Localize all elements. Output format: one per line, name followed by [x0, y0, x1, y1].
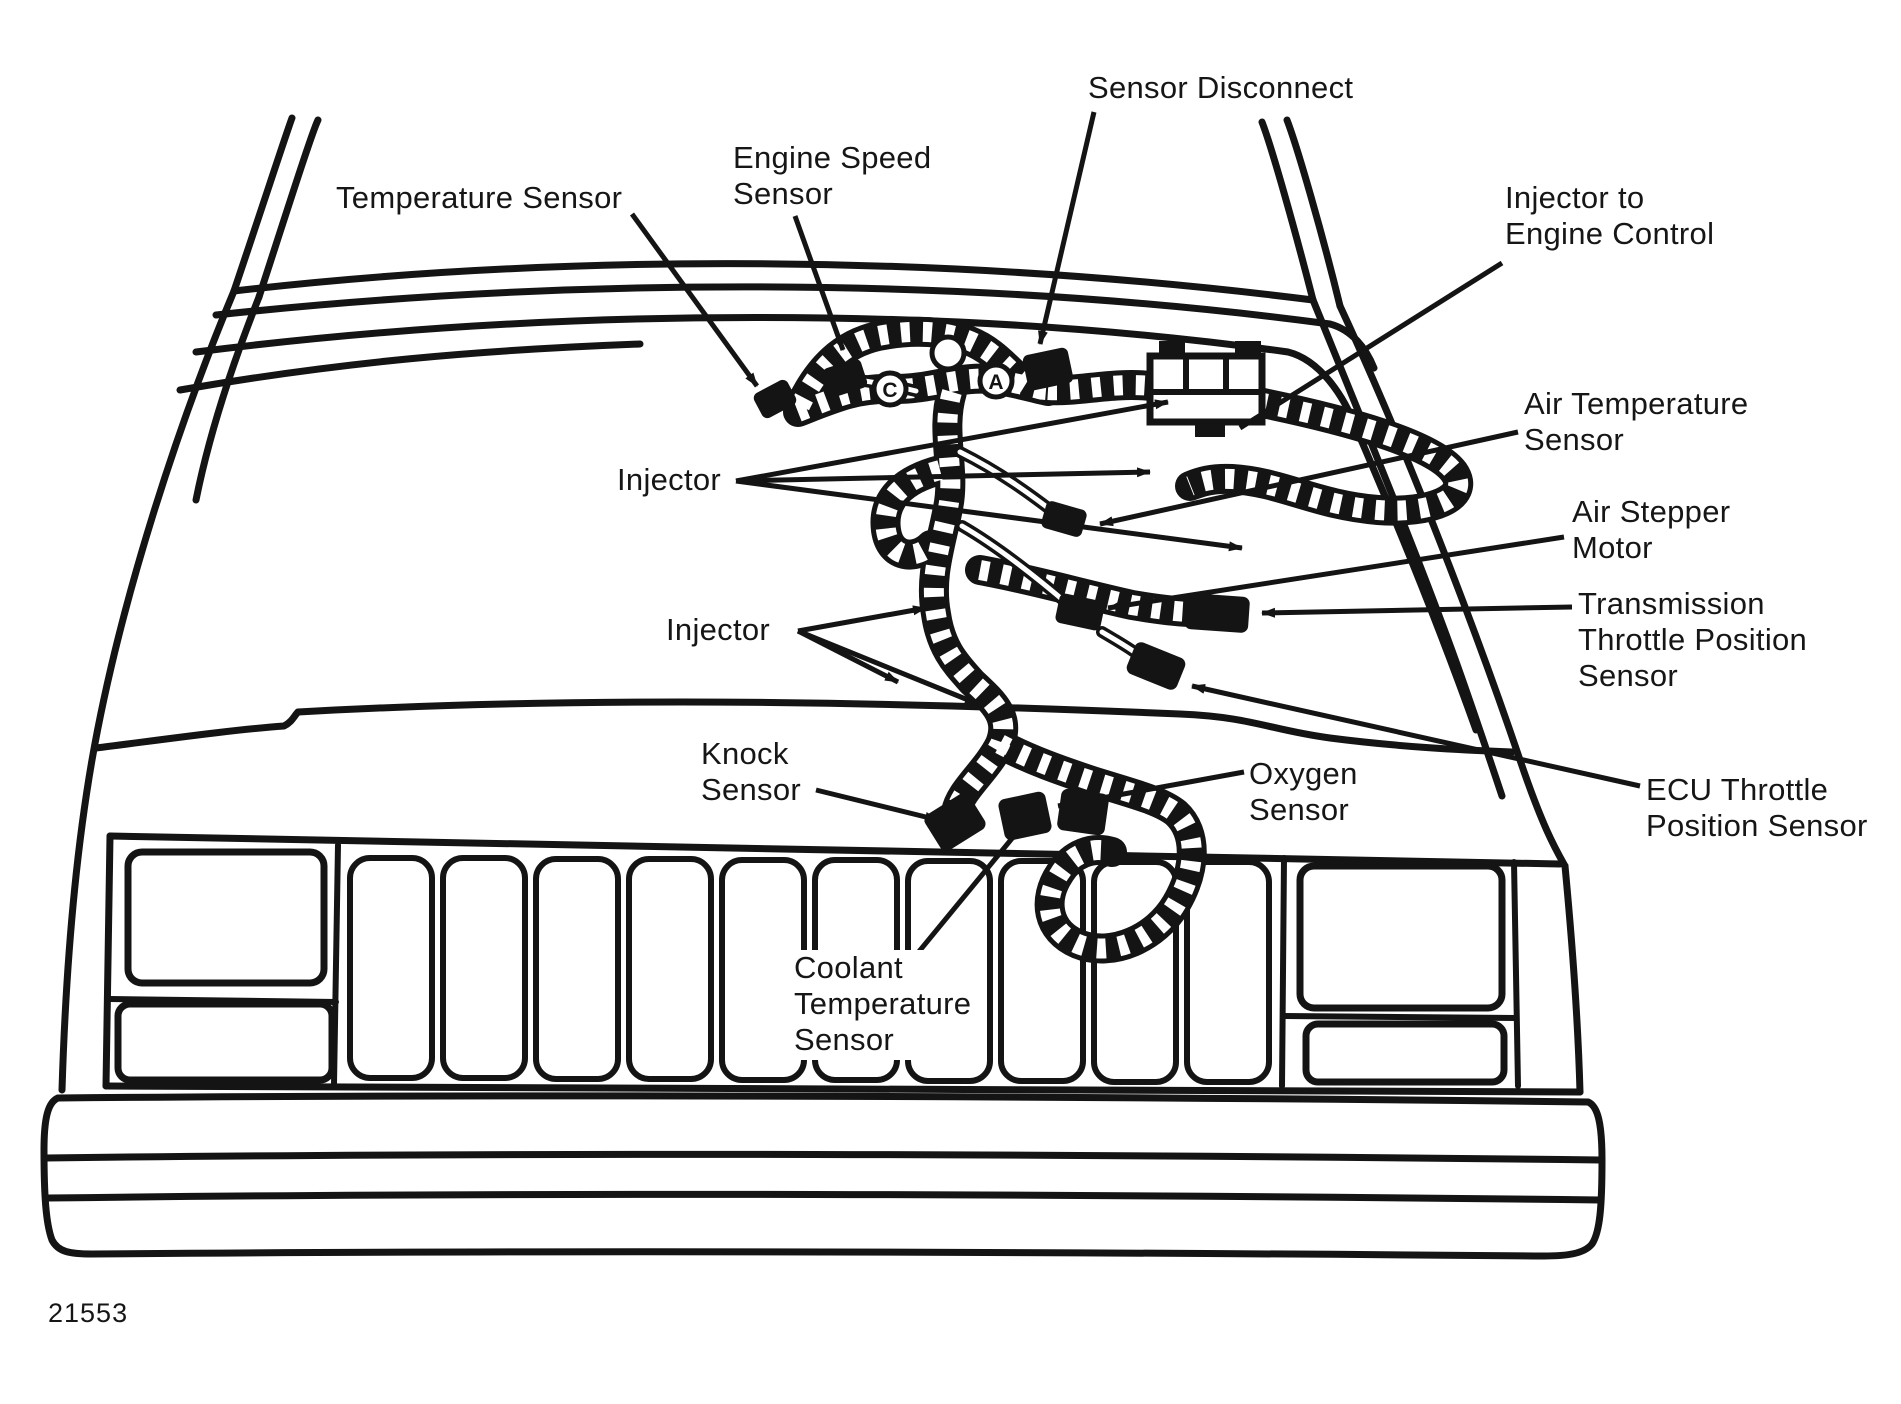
label-line: Engine Control: [1505, 216, 1714, 252]
label-coolant-temperature-sensor: Coolant Temperature Sensor: [792, 950, 977, 1060]
label-line: Injector: [617, 462, 721, 498]
label-line: Sensor: [701, 772, 801, 808]
coolant-temperature-sensor-connector: [998, 792, 1051, 841]
right-parking-lamp: [1306, 1024, 1504, 1082]
label-line: Sensor Disconnect: [1088, 70, 1353, 106]
label-line: Sensor: [1249, 792, 1358, 828]
label-temperature-sensor: Temperature Sensor: [336, 180, 622, 216]
cowl-crease-line: [180, 344, 640, 390]
grille-slat: [1094, 862, 1176, 1082]
label-line: Knock: [701, 736, 801, 772]
bumper-right-cap: [1544, 1102, 1602, 1256]
wiring-diagram-page: C A Temperature Sensor Engine Speed Sens…: [0, 0, 1901, 1404]
label-line: Sensor: [1578, 658, 1807, 694]
label-line: ECU Throttle: [1646, 772, 1868, 808]
grille-slat: [443, 858, 525, 1078]
grille-divider-far-right: [1514, 862, 1518, 1086]
right-a-pillar-outer-line: [1287, 120, 1340, 306]
air-stepper-motor-leader: [1108, 537, 1564, 608]
left-door-seam: [196, 297, 259, 500]
left-body-edge: [62, 291, 234, 1090]
label-injector-to-engine-control: Injector to Engine Control: [1505, 180, 1714, 252]
grille-divider-right: [1282, 858, 1284, 1086]
grille-slat: [629, 859, 711, 1079]
engine-speed-sensor-leader: [795, 216, 843, 350]
label-line: Temperature: [794, 986, 971, 1022]
label-air-temperature-sensor: Air Temperature Sensor: [1524, 386, 1748, 458]
knock-sensor-leader: [816, 790, 938, 820]
grille-left-edge: [106, 836, 110, 1086]
bumper: [44, 1096, 1602, 1256]
left-a-pillar-outer-line: [234, 118, 292, 291]
label-ecu-throttle-position-sensor: ECU Throttle Position Sensor: [1646, 772, 1868, 844]
harness-marker-ring-middle: [932, 337, 964, 369]
label-line: Air Stepper: [1572, 494, 1730, 530]
left-headlight: [128, 852, 324, 983]
label-line: Air Temperature: [1524, 386, 1748, 422]
bumper-bottom-edge: [92, 1252, 1544, 1256]
label-line: Transmission: [1578, 586, 1807, 622]
left-fender-top: [96, 712, 298, 748]
label-sensor-disconnect: Sensor Disconnect: [1088, 70, 1353, 106]
wiring-harness: C A: [753, 332, 1458, 949]
bumper-left-cap: [44, 1098, 92, 1254]
grille-bottom-edge: [106, 1086, 1580, 1092]
left-parking-lamp: [118, 1004, 332, 1080]
figure-number: 21553: [48, 1298, 128, 1329]
left-a-pillar-inner-line: [259, 120, 318, 297]
callout-leaders: [632, 112, 1640, 960]
right-fender-face: [1565, 866, 1580, 1092]
grille-slat: [350, 858, 432, 1078]
grille-slat: [1187, 862, 1269, 1082]
hood-front-edge: [298, 702, 1512, 752]
right-lamp-divider: [1284, 1016, 1516, 1018]
label-knock-sensor: Knock Sensor: [701, 736, 801, 808]
right-a-pillar-inner-line: [1262, 122, 1313, 300]
harness-marker-letter: C: [882, 379, 897, 402]
label-line: Oxygen: [1249, 756, 1358, 792]
temperature-sensor-leader: [632, 214, 757, 386]
label-line: Motor: [1572, 530, 1730, 566]
air-temperature-sensor-connector: [1041, 501, 1087, 537]
injector-lower-leader-1: [798, 608, 926, 631]
label-line: Injector to: [1505, 180, 1714, 216]
label-line: Injector: [666, 612, 770, 648]
label-line: Engine Speed: [733, 140, 931, 176]
label-line: Coolant: [794, 950, 971, 986]
label-line: Position Sensor: [1646, 808, 1868, 844]
label-line: Throttle Position: [1578, 622, 1807, 658]
transmission-tps-leader: [1262, 607, 1572, 613]
bumper-rub-strip-upper: [46, 1154, 1600, 1160]
sensor-disconnect-leader: [1040, 112, 1094, 344]
label-line: Sensor: [1524, 422, 1748, 458]
bumper-rub-strip-lower: [48, 1194, 1600, 1200]
transmission-tps-connector: [1185, 594, 1249, 632]
label-line: Sensor: [733, 176, 931, 212]
right-headlight: [1300, 866, 1502, 1008]
grille-slat: [536, 859, 618, 1079]
ecu-tps-connector: [1126, 641, 1186, 690]
label-engine-speed-sensor: Engine Speed Sensor: [733, 140, 931, 212]
bumper-top-edge: [58, 1096, 1588, 1102]
label-transmission-throttle-position-sensor: Transmission Throttle Position Sensor: [1578, 586, 1807, 694]
label-injector-lower: Injector: [666, 612, 770, 648]
harness-marker-letter: A: [988, 371, 1003, 394]
label-oxygen-sensor: Oxygen Sensor: [1249, 756, 1358, 828]
windshield-base-line: [234, 264, 1313, 300]
label-injector-upper: Injector: [617, 462, 721, 498]
control-connector-tab: [1196, 420, 1224, 436]
label-air-stepper-motor: Air Stepper Motor: [1572, 494, 1730, 566]
injector-engine-control-leader: [1240, 263, 1502, 428]
label-line: Temperature Sensor: [336, 180, 622, 216]
label-line: Sensor: [794, 1022, 971, 1058]
